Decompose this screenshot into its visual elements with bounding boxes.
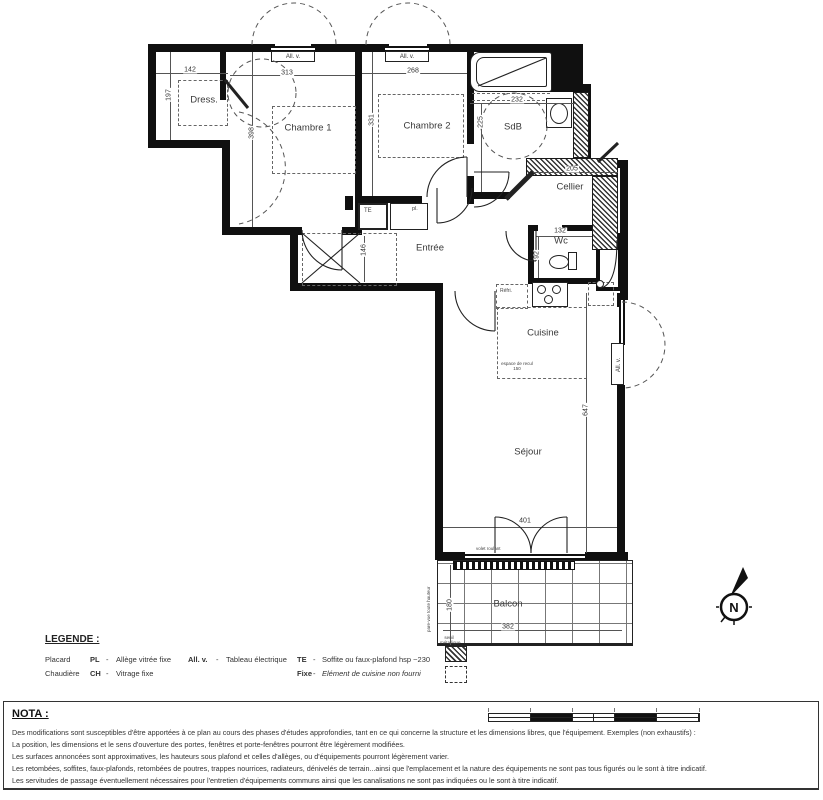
room-label-wc: Wc <box>554 236 568 247</box>
dim-label: 205 <box>565 166 579 173</box>
dim-label: 331 <box>369 113 376 127</box>
te-label: TE <box>364 208 372 215</box>
dim-label: 268 <box>406 68 420 75</box>
room-label-balcony: Balcon <box>493 599 522 610</box>
room-label-living: Séjour <box>514 447 541 458</box>
compass-north-icon: N <box>716 567 752 625</box>
room-label-bedroom1: Chambre 1 <box>285 123 332 134</box>
dim-label: 313 <box>280 70 294 77</box>
room-label-bedroom2: Chambre 2 <box>404 121 451 132</box>
floor-plan-page: All. v. All. v. All. v. Réfri. espace de… <box>0 0 823 800</box>
clearance-label: espace de recul 150 <box>500 362 534 372</box>
fridge-label: Réfri. <box>500 289 512 295</box>
dim-label: 142 <box>183 67 197 74</box>
dim-label: 197 <box>166 88 173 102</box>
room-label-storage: Cellier <box>557 182 584 193</box>
dim-label: 92 <box>534 250 541 260</box>
pl-label: pl. <box>412 206 418 212</box>
room-label-dressing: Dress. <box>190 95 217 106</box>
dim-label: 647 <box>583 403 590 417</box>
room-label-bathroom: SdB <box>504 122 522 133</box>
dim-label: 401 <box>518 518 532 525</box>
dim-label: 146 <box>361 243 368 257</box>
dim-label: 398 <box>249 126 256 140</box>
dim-label: 232 <box>510 97 524 104</box>
room-label-entry: Entrée <box>416 243 444 254</box>
sill-annotation: seuil métallique <box>440 636 458 646</box>
dim-label: 180 <box>447 598 454 612</box>
dim-label: 382 <box>501 624 515 631</box>
dim-label: 132 <box>553 228 567 235</box>
room-label-kitchen: Cuisine <box>527 328 559 339</box>
screen-annotation: pare-vue toute hauteur <box>427 586 432 632</box>
compass-letter: N <box>729 600 738 615</box>
shutter-annotation: volet roulant <box>476 547 501 552</box>
dim-label: 225 <box>478 115 485 129</box>
